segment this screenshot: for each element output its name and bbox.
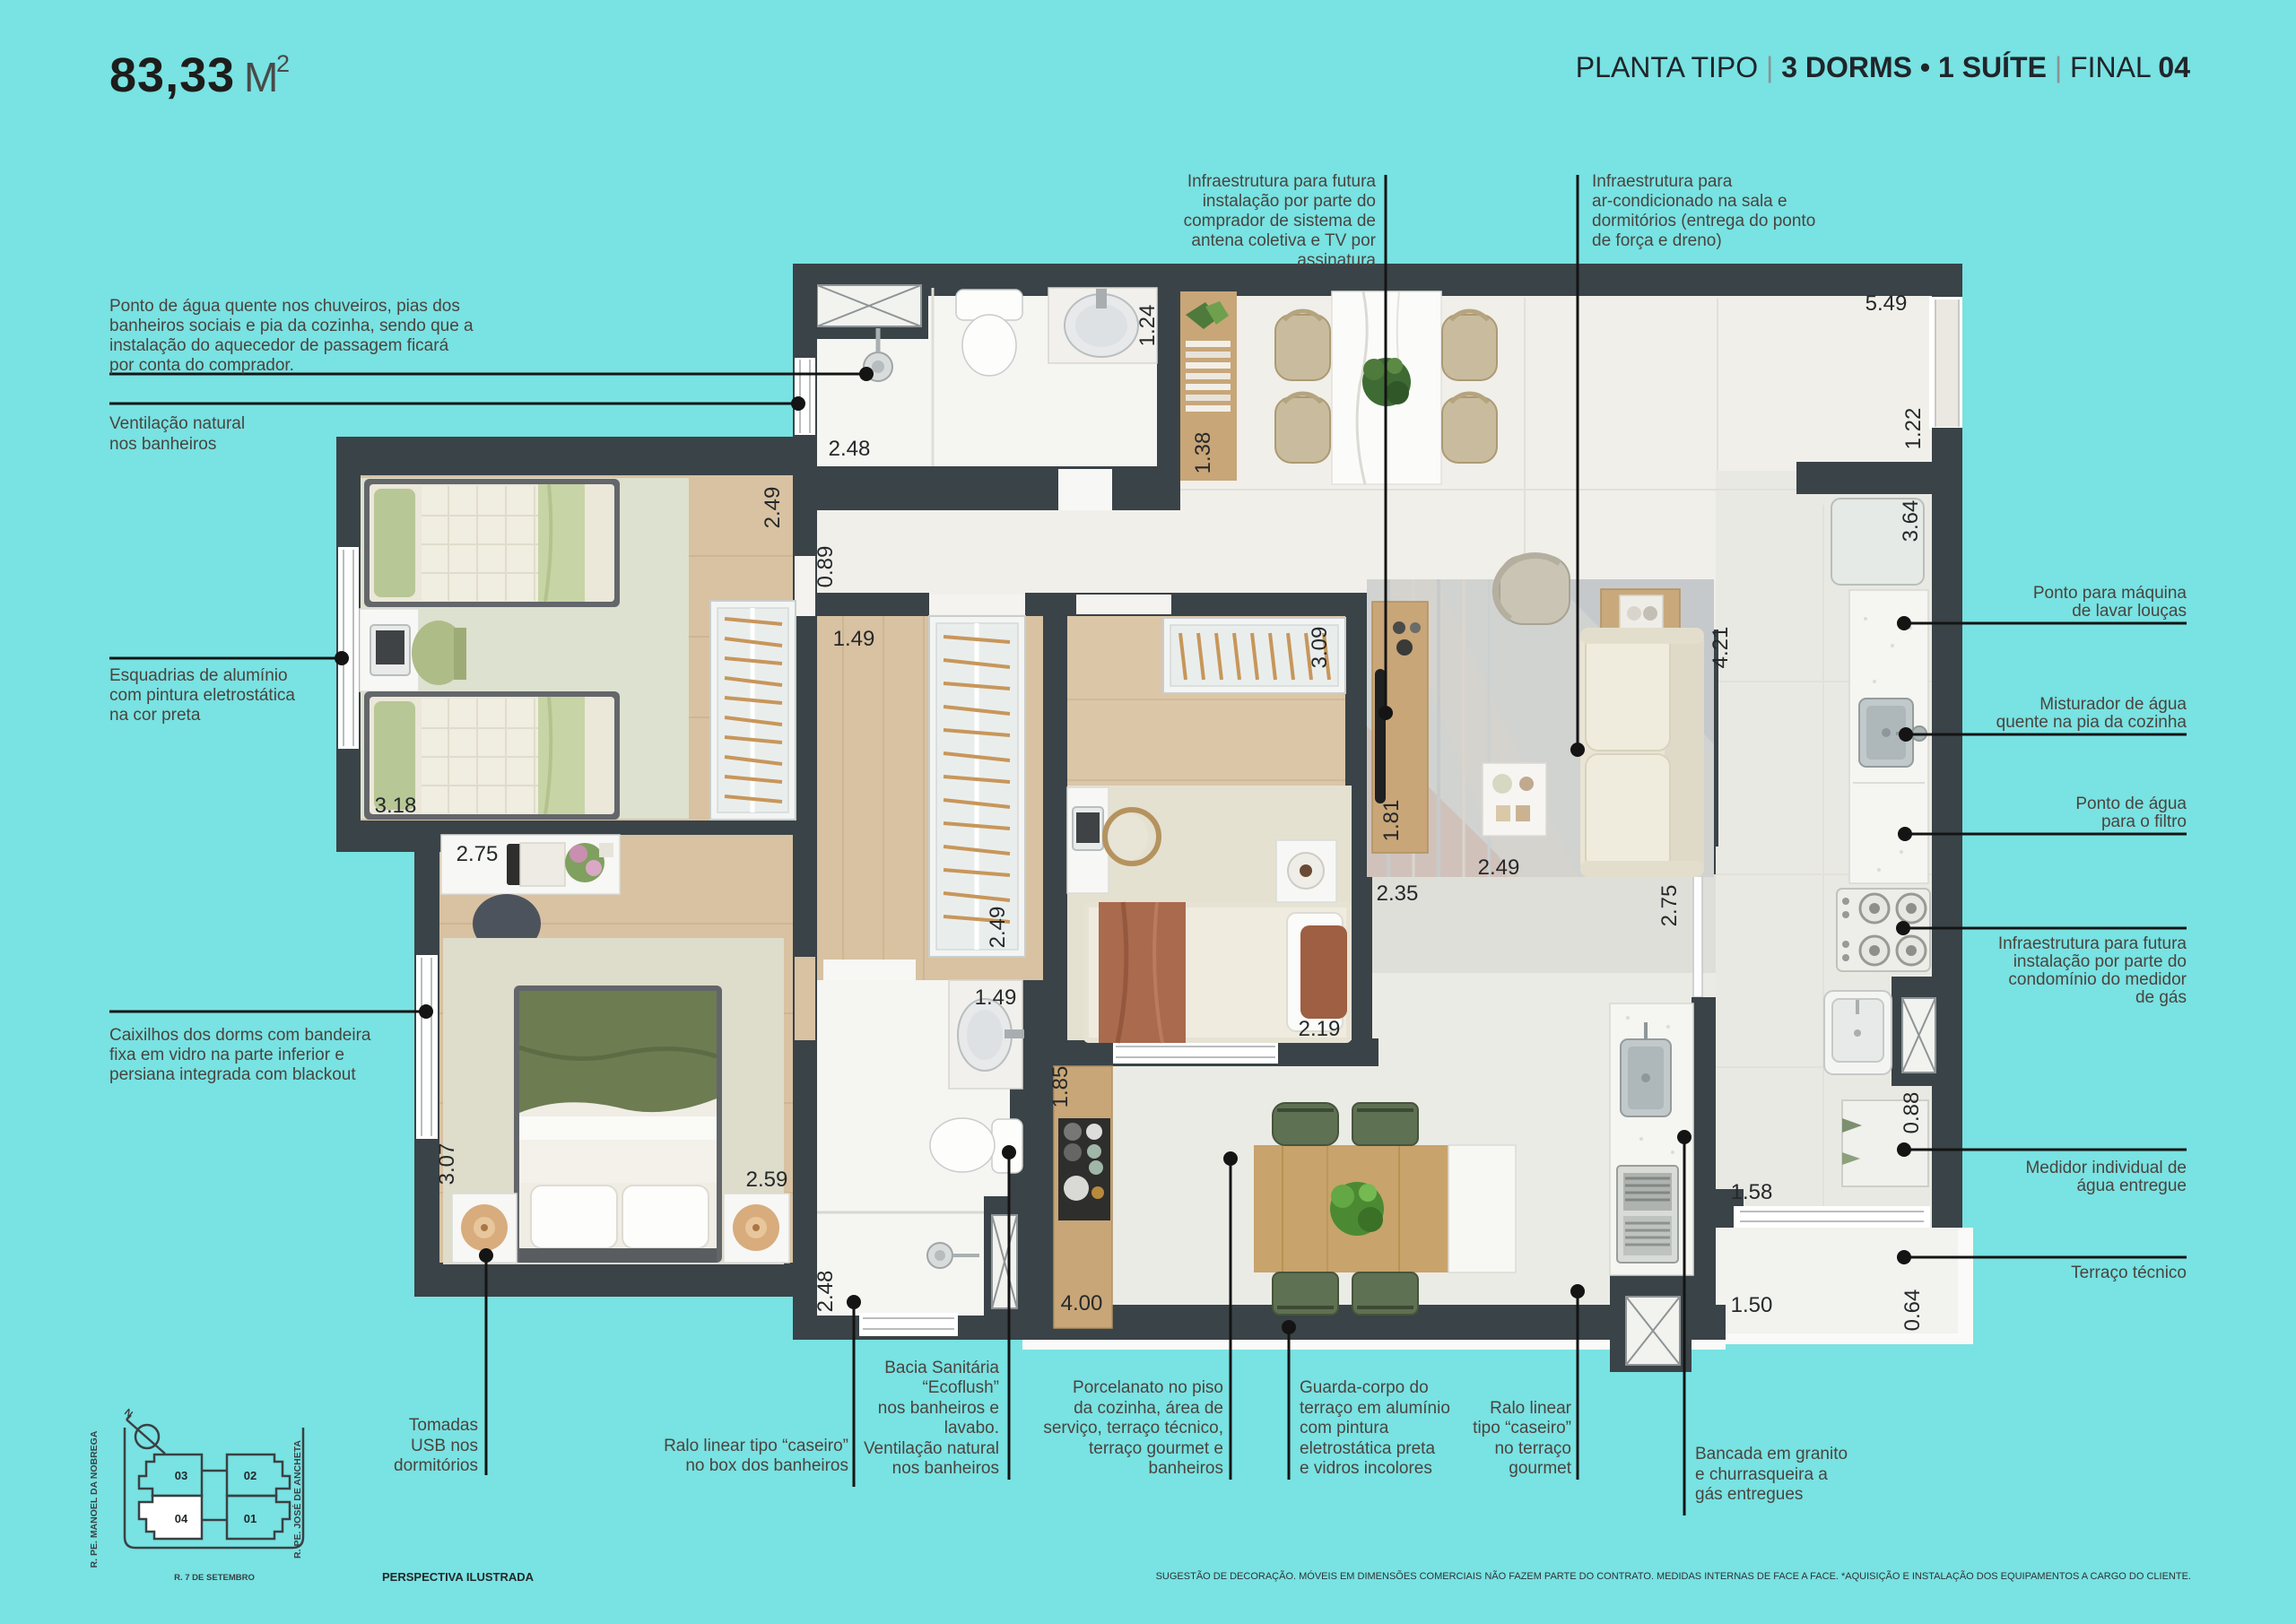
svg-text:Ventilação natural: Ventilação natural [109, 414, 245, 433]
svg-text:Guarda-corpo do: Guarda-corpo do [1300, 1378, 1429, 1397]
svg-text:Terraço técnico: Terraço técnico [2071, 1264, 2187, 1282]
svg-text:2.75: 2.75 [457, 842, 499, 866]
svg-text:“Ecoflush”: “Ecoflush” [922, 1378, 999, 1397]
svg-text:para o filtro: para o filtro [2101, 812, 2187, 831]
svg-text:eletrostática preta: eletrostática preta [1300, 1439, 1435, 1458]
svg-text:03: 03 [175, 1469, 187, 1482]
svg-text:2: 2 [276, 50, 290, 77]
svg-text:Esquadrias de alumínio: Esquadrias de alumínio [109, 666, 288, 685]
svg-text:2.49: 2.49 [761, 487, 785, 529]
svg-text:Porcelanato no piso: Porcelanato no piso [1073, 1378, 1223, 1397]
svg-text:Ralo linear: Ralo linear [1490, 1399, 1571, 1418]
svg-text:Infraestrutura para: Infraestrutura para [1592, 172, 1733, 191]
svg-text:tipo “caseiro”: tipo “caseiro” [1473, 1419, 1571, 1437]
svg-text:PLANTA TIPO | 3 DORMS • 1 SU: PLANTA TIPO | 3 DORMS • 1 SUÍTE | FINAL … [1576, 51, 2190, 83]
svg-text:Bancada em granito: Bancada em granito [1695, 1445, 1848, 1463]
svg-text:lavabo.: lavabo. [944, 1419, 999, 1437]
svg-text:Ponto de água: Ponto de água [2075, 795, 2187, 813]
svg-text:gourmet: gourmet [1509, 1459, 1571, 1478]
svg-text:R. 7 DE SETEMBRO: R. 7 DE SETEMBRO [174, 1573, 255, 1583]
svg-text:1.49: 1.49 [833, 627, 875, 651]
svg-text:dormitórios (entrega do ponto: dormitórios (entrega do ponto [1592, 212, 1815, 230]
svg-text:04: 04 [175, 1512, 188, 1525]
svg-text:antena coletiva e TV por: antena coletiva e TV por [1191, 231, 1376, 250]
svg-text:Ponto de água quente nos chuv: Ponto de água quente nos chuveiros, pias… [109, 297, 460, 316]
svg-text:e vidros incolores: e vidros incolores [1300, 1459, 1432, 1478]
svg-text:instalação do aquecedor de pas: instalação do aquecedor de passagem fica… [109, 336, 449, 355]
svg-text:Ralo linear tipo “caseiro”: Ralo linear tipo “caseiro” [664, 1437, 848, 1455]
svg-text:nos banheiros e: nos banheiros e [878, 1399, 999, 1418]
svg-text:Misturador de água: Misturador de água [2039, 695, 2187, 714]
svg-text:Infraestrutura para futura: Infraestrutura para futura [1187, 172, 1377, 191]
svg-text:2.75: 2.75 [1657, 885, 1682, 927]
svg-text:fixa em vidro na parte inferio: fixa em vidro na parte inferior e [109, 1046, 344, 1064]
svg-text:terraço gourmet e: terraço gourmet e [1089, 1439, 1223, 1458]
svg-text:nos banheiros: nos banheiros [892, 1459, 999, 1478]
svg-text:por conta do comprador.: por conta do comprador. [109, 356, 294, 375]
svg-text:terraço em alumínio: terraço em alumínio [1300, 1399, 1450, 1418]
svg-text:1.22: 1.22 [1901, 408, 1926, 450]
svg-text:0.88: 0.88 [1900, 1092, 1924, 1134]
svg-text:2.59: 2.59 [746, 1168, 788, 1192]
svg-text:83,33: 83,33 [109, 48, 235, 102]
svg-text:02: 02 [244, 1469, 257, 1482]
svg-text:SUGESTÃO DE DECORAÇÃO. MÓVEIS: SUGESTÃO DE DECORAÇÃO. MÓVEIS EM DIMENSÕ… [1156, 1570, 2191, 1582]
svg-text:de gás: de gás [2135, 988, 2187, 1007]
svg-text:no terraço: no terraço [1494, 1439, 1571, 1458]
svg-text:5.49: 5.49 [1865, 291, 1908, 316]
svg-text:USB nos: USB nos [411, 1437, 478, 1455]
svg-text:na cor preta: na cor preta [109, 706, 201, 725]
svg-text:2.35: 2.35 [1377, 881, 1419, 906]
svg-text:2.48: 2.48 [813, 1271, 838, 1313]
svg-text:1.49: 1.49 [975, 986, 1017, 1010]
svg-text:instalação por parte do: instalação por parte do [2013, 952, 2187, 971]
svg-text:quente na pia da cozinha: quente na pia da cozinha [1996, 713, 2187, 732]
svg-text:2.49: 2.49 [986, 907, 1010, 949]
svg-text:da cozinha, área de: da cozinha, área de [1074, 1399, 1223, 1418]
svg-text:2.48: 2.48 [829, 437, 871, 461]
svg-text:serviço, terraço técnico,: serviço, terraço técnico, [1043, 1419, 1223, 1437]
svg-text:4.00: 4.00 [1061, 1291, 1103, 1316]
svg-text:PERSPECTIVA ILUSTRADA: PERSPECTIVA ILUSTRADA [382, 1570, 535, 1584]
svg-text:1.24: 1.24 [1135, 305, 1160, 347]
svg-text:com pintura eletrostática: com pintura eletrostática [109, 686, 295, 705]
svg-text:Bacia Sanitária: Bacia Sanitária [884, 1359, 999, 1377]
svg-text:e churrasqueira a: e churrasqueira a [1695, 1465, 1828, 1484]
svg-text:1.38: 1.38 [1191, 432, 1215, 474]
svg-text:comprador de sistema de: comprador de sistema de [1184, 212, 1376, 230]
svg-text:4.21: 4.21 [1709, 627, 1733, 669]
svg-text:1.58: 1.58 [1731, 1180, 1773, 1204]
svg-text:R. PE. MANOEL DA NOBREGA: R. PE. MANOEL DA NOBREGA [89, 1430, 100, 1568]
svg-text:nos banheiros: nos banheiros [109, 435, 216, 454]
svg-text:condomínio do medidor: condomínio do medidor [2008, 970, 2187, 989]
svg-text:banheiros sociais e pia da coz: banheiros sociais e pia da cozinha, send… [109, 317, 474, 335]
svg-text:3.07: 3.07 [435, 1143, 459, 1185]
svg-text:assinatura: assinatura [1297, 251, 1376, 270]
svg-text:banheiros: banheiros [1149, 1459, 1223, 1478]
svg-text:1.81: 1.81 [1379, 800, 1404, 842]
svg-text:Ventilação natural: Ventilação natural [864, 1439, 999, 1458]
svg-text:Medidor individual de: Medidor individual de [2025, 1159, 2187, 1177]
svg-text:0.89: 0.89 [813, 546, 838, 588]
svg-text:2.49: 2.49 [1478, 855, 1520, 880]
svg-text:1.85: 1.85 [1048, 1066, 1073, 1108]
svg-text:R. PE. JOSÉ DE ANCHETA: R. PE. JOSÉ DE ANCHETA [291, 1440, 303, 1559]
svg-text:Caixilhos dos dorms com bandei: Caixilhos dos dorms com bandeira [109, 1026, 371, 1045]
svg-text:0.64: 0.64 [1900, 1290, 1925, 1332]
svg-text:3.18: 3.18 [375, 794, 417, 818]
svg-text:gás entregues: gás entregues [1695, 1485, 1803, 1504]
svg-text:2.19: 2.19 [1299, 1017, 1341, 1041]
svg-text:Tomadas: Tomadas [409, 1416, 478, 1435]
svg-text:01: 01 [244, 1512, 257, 1525]
svg-text:persiana integrada com blackou: persiana integrada com blackout [109, 1065, 356, 1084]
svg-text:3.64: 3.64 [1899, 500, 1923, 543]
svg-text:de força e dreno): de força e dreno) [1592, 231, 1722, 250]
svg-text:Ponto para máquina: Ponto para máquina [2033, 584, 2187, 603]
svg-text:3.09: 3.09 [1308, 627, 1332, 669]
svg-text:ar-condicionado na sala e: ar-condicionado na sala e [1592, 192, 1787, 211]
svg-text:1.50: 1.50 [1731, 1293, 1773, 1317]
svg-text:com pintura: com pintura [1300, 1419, 1389, 1437]
svg-text:água entregue: água entregue [2076, 1177, 2187, 1195]
svg-text:instalação por parte do: instalação por parte do [1203, 192, 1376, 211]
svg-text:de lavar louças: de lavar louças [2072, 602, 2187, 621]
svg-text:M: M [244, 54, 278, 100]
svg-text:dormitórios: dormitórios [394, 1456, 478, 1475]
svg-text:Infraestrutura para futura: Infraestrutura para futura [1998, 934, 2187, 953]
svg-text:no box dos banheiros: no box dos banheiros [685, 1456, 848, 1475]
